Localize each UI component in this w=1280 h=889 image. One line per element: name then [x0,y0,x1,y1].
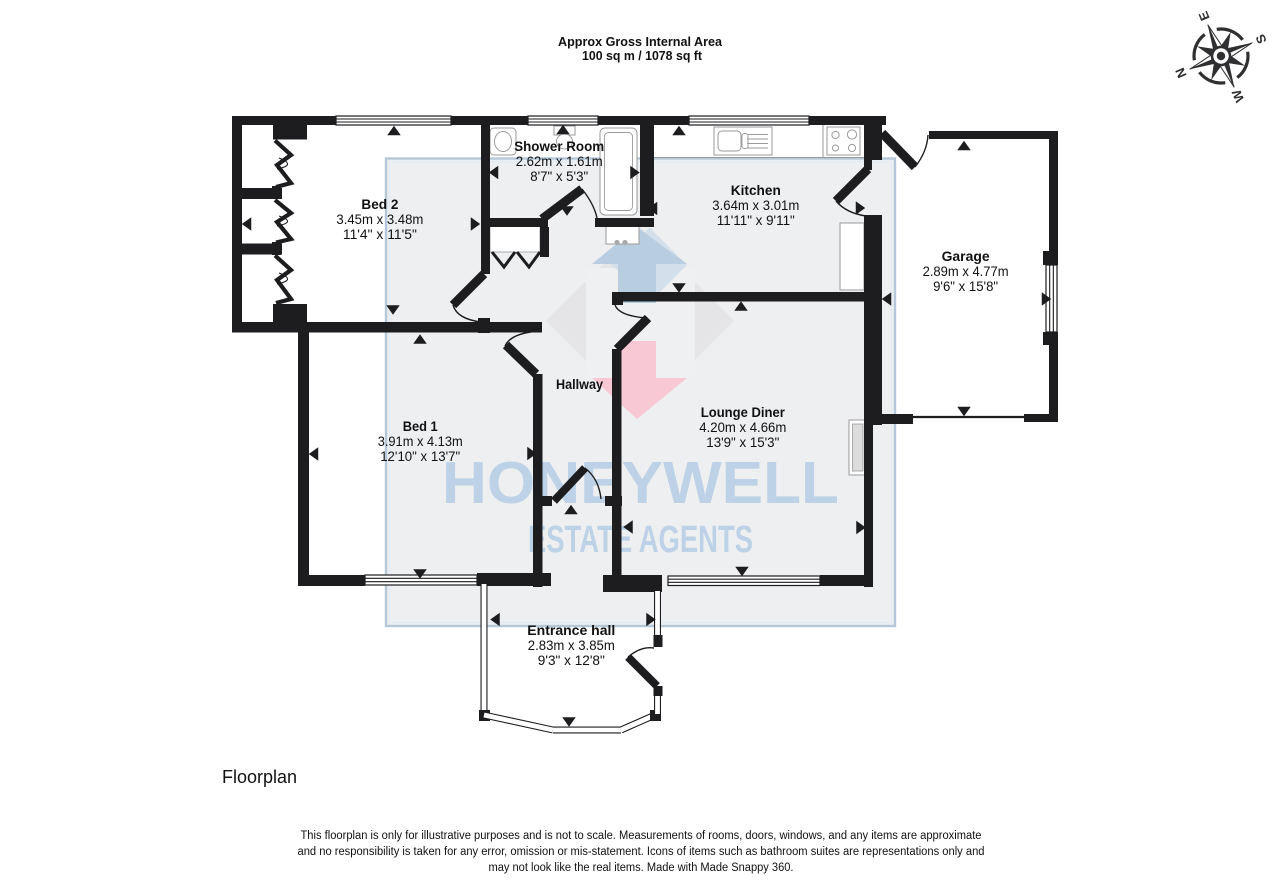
svg-text:Bed 2: Bed 2 [361,196,398,212]
svg-text:2.89m x 4.77m: 2.89m x 4.77m [923,264,1009,279]
svg-text:HONEYWELL: HONEYWELL [442,450,839,516]
svg-text:Bed 1: Bed 1 [403,418,438,434]
svg-text:Hallway: Hallway [556,376,603,392]
svg-text:3.91m x 4.13m: 3.91m x 4.13m [378,434,463,449]
svg-text:100 sq m / 1078 sq ft: 100 sq m / 1078 sq ft [582,49,703,63]
svg-text:12'10" x 13'7": 12'10" x 13'7" [380,449,460,464]
svg-text:11'11" x 9'11": 11'11" x 9'11" [717,213,795,228]
svg-text:and no responsibility is taken: and no responsibility is taken for any e… [298,846,985,858]
svg-text:ESTATE AGENTS: ESTATE AGENTS [528,519,753,561]
svg-text:13'9" x 15'3": 13'9" x 15'3" [706,435,779,450]
svg-text:9'3" x 12'8": 9'3" x 12'8" [538,653,605,668]
svg-text:4.20m x 4.66m: 4.20m x 4.66m [699,420,786,435]
svg-text:3.64m x 3.01m: 3.64m x 3.01m [712,198,799,213]
svg-text:2.62m x 1.61m: 2.62m x 1.61m [516,154,603,169]
svg-text:Kitchen: Kitchen [731,182,781,198]
svg-text:11'4" x 11'5": 11'4" x 11'5" [343,227,417,242]
svg-text:This floorplan is only for ill: This floorplan is only for illustrative … [301,830,982,842]
svg-text:may not look like the real ite: may not look like the real items. Made w… [489,862,794,874]
svg-text:Approx Gross Internal Area: Approx Gross Internal Area [558,35,723,49]
svg-text:Shower Room: Shower Room [514,138,604,154]
svg-text:Garage: Garage [942,248,990,264]
svg-text:2.83m x 3.85m: 2.83m x 3.85m [528,638,615,653]
svg-text:Lounge Diner: Lounge Diner [701,404,786,420]
svg-text:Entrance hall: Entrance hall [527,622,615,638]
svg-text:9'6" x 15'8": 9'6" x 15'8" [933,279,998,294]
svg-text:8'7" x 5'3": 8'7" x 5'3" [530,169,588,184]
svg-text:Floorplan: Floorplan [222,767,297,787]
svg-text:3.45m x 3.48m: 3.45m x 3.48m [336,212,423,227]
